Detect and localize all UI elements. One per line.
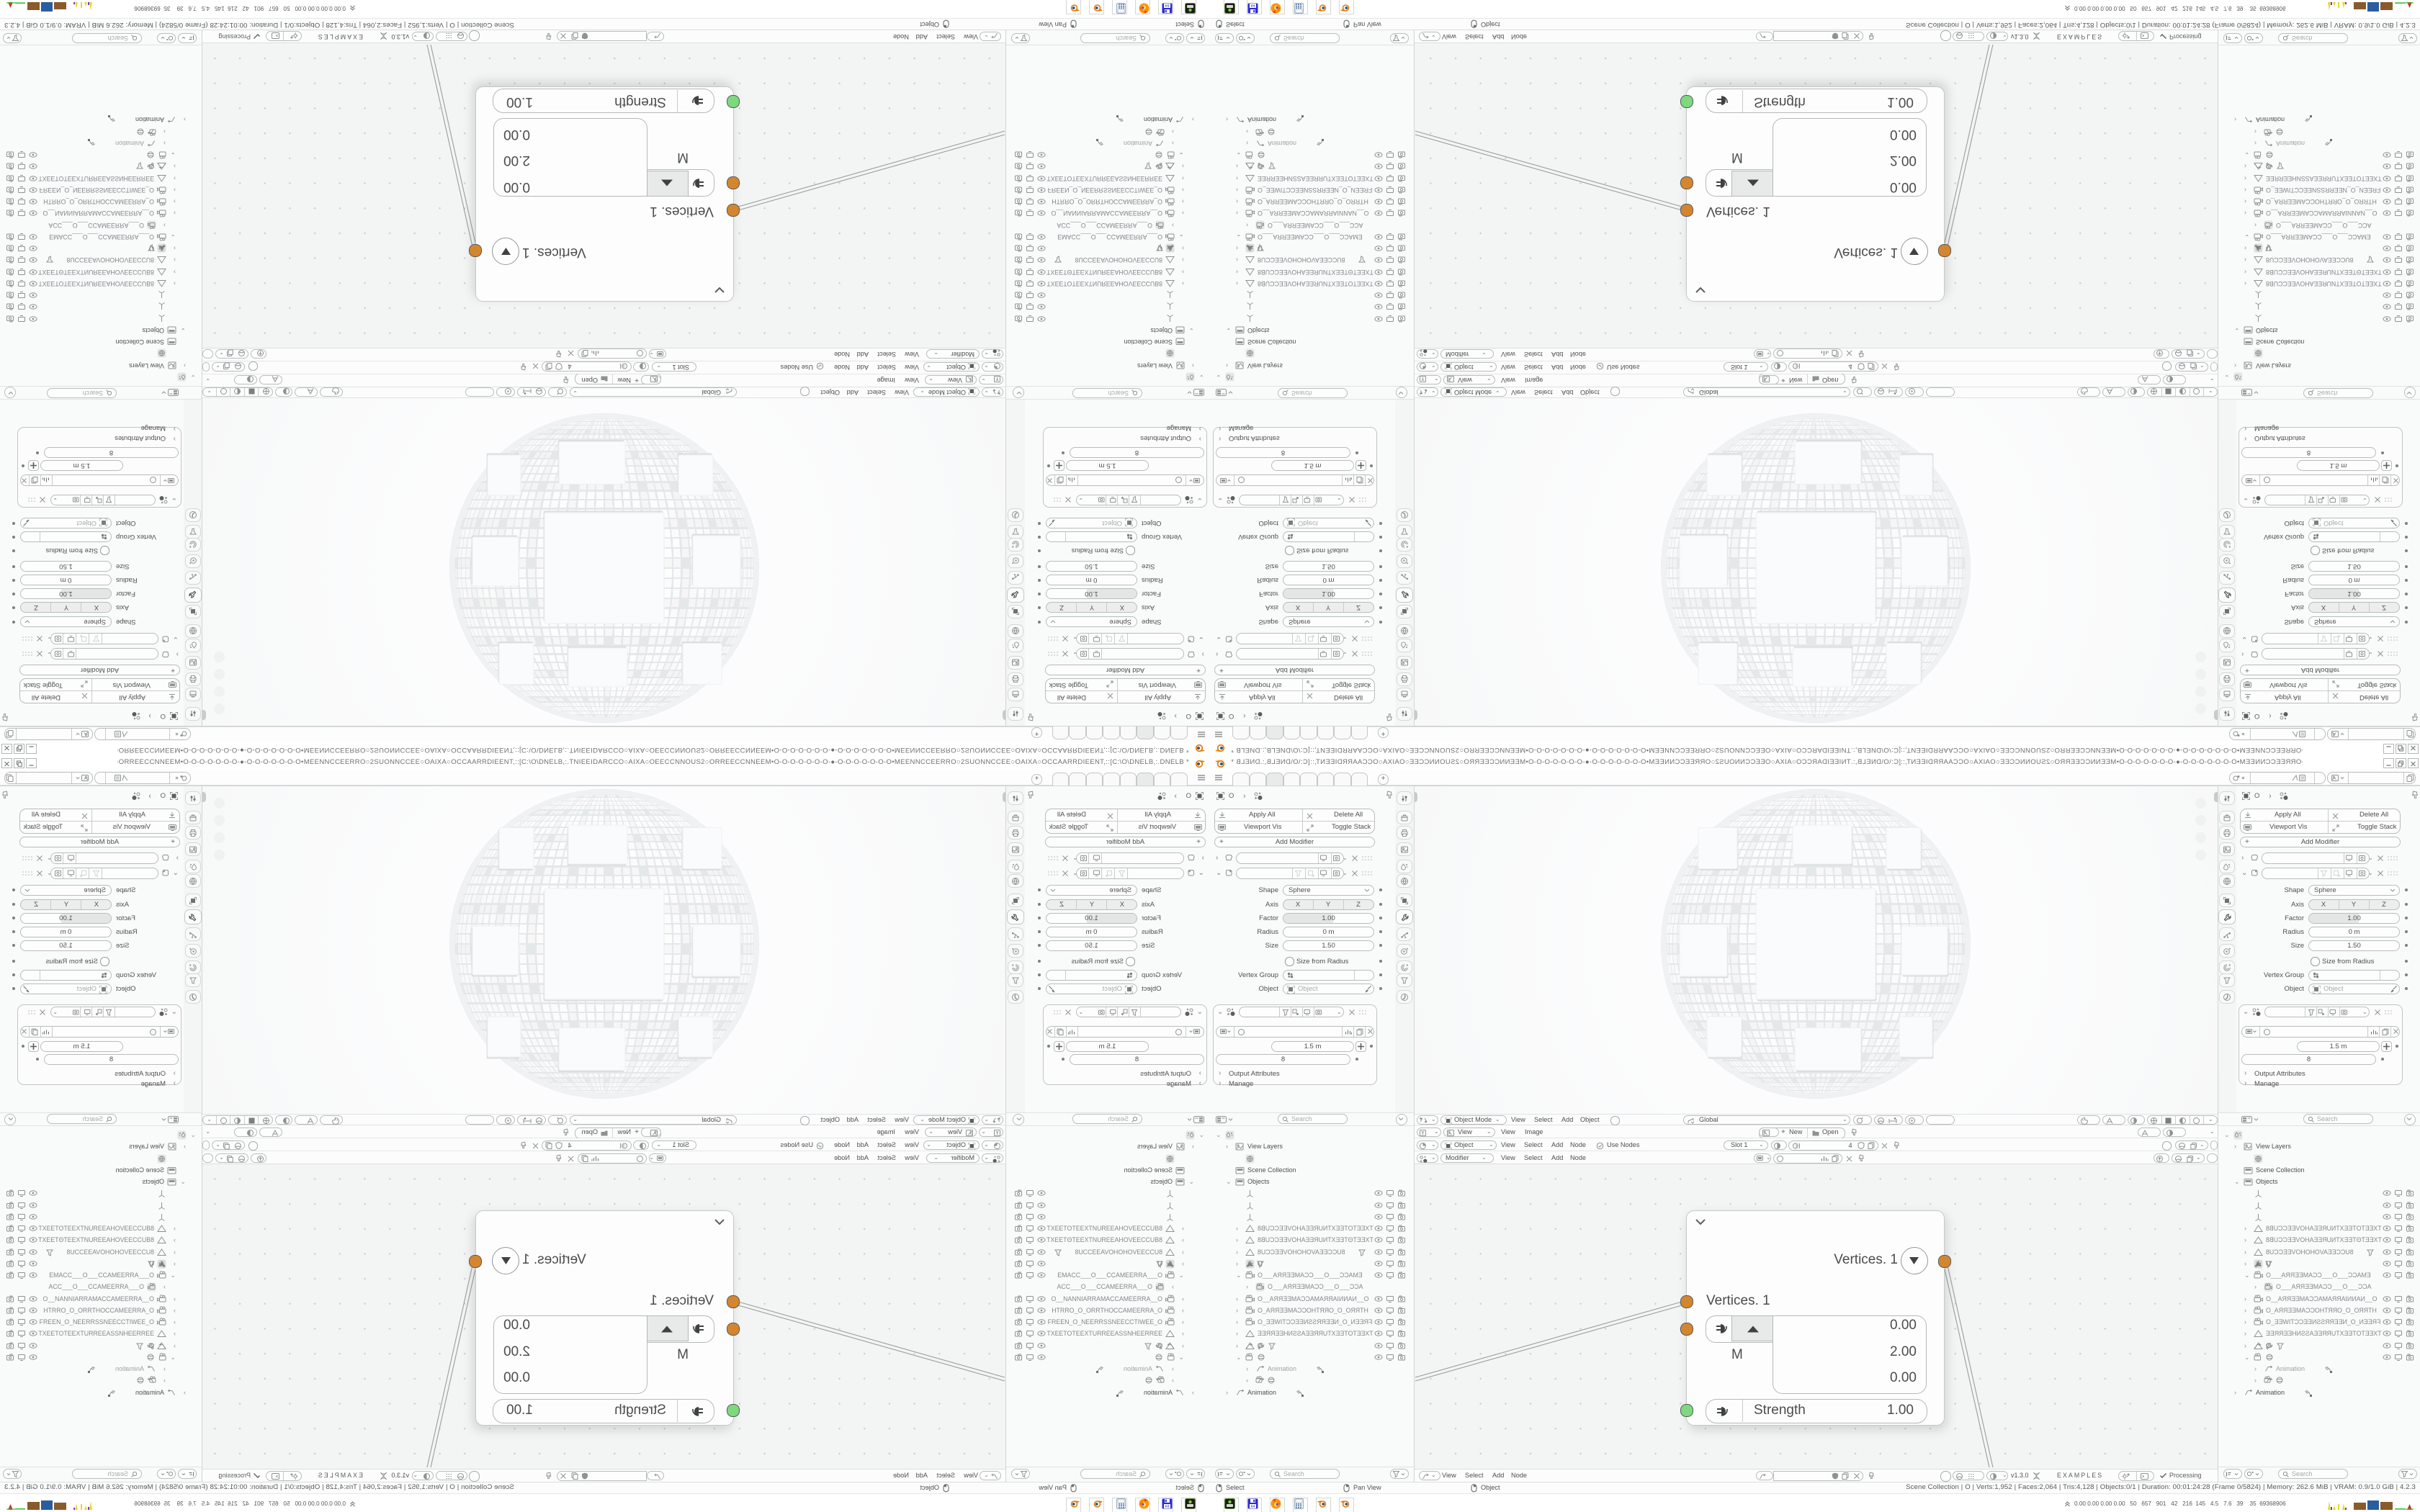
- svg-text:64: 64: [1165, 3, 1170, 7]
- svg-text:64: 64: [1251, 1505, 1255, 1509]
- svg-text:64: 64: [1251, 3, 1255, 7]
- svg-text:64: 64: [1165, 1505, 1170, 1509]
